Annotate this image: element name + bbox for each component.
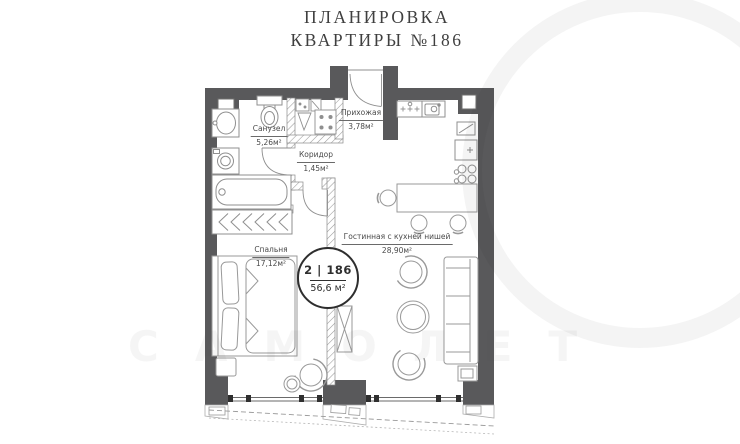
nightstand	[216, 358, 236, 376]
bedroom-door	[303, 190, 328, 216]
unit-badge: 2 | 186 56,6 м²	[297, 247, 359, 309]
room-label-koridor: Коридор 1,45м²	[297, 150, 335, 175]
room-name: Коридор	[297, 150, 335, 163]
room-name: Гостинная с кухней нишей	[342, 232, 453, 245]
room-name: Прихожая	[339, 108, 383, 121]
wardrobe	[212, 210, 292, 234]
toilet	[257, 96, 282, 128]
floor-plan-page: ПЛАНИРОВКА КВАРТИРЫ №186	[0, 0, 740, 444]
floor-plan-drawing	[0, 0, 740, 444]
coffee-table	[397, 301, 429, 333]
room-label-gostinaya: Гостинная с кухней нишей 28,90м²	[342, 232, 453, 257]
bed	[212, 256, 297, 356]
tv-console	[337, 306, 352, 352]
room-label-sanuzel: Санузел 5,26м²	[251, 124, 288, 149]
unit-number: 2 | 186	[304, 263, 352, 277]
room-area: 5,26м²	[251, 137, 288, 149]
room-name: Санузел	[251, 124, 288, 137]
kitchen-sink	[422, 101, 445, 117]
kitchen-counter	[397, 101, 422, 117]
balcony-outline	[205, 405, 494, 434]
bedroom-small-table	[284, 376, 300, 392]
room-label-prihozhaya: Прихожая 3,78м²	[339, 108, 383, 133]
washing-machine	[212, 148, 239, 174]
bathroom-sink	[212, 109, 239, 137]
utility-closet	[296, 99, 336, 134]
room-label-spalnya: Спальня 17,12м²	[252, 245, 289, 270]
sofa-side-table	[458, 366, 477, 381]
room-name: Спальня	[252, 245, 289, 258]
room-area: 17,12м²	[252, 258, 289, 270]
total-area: 56,6 м²	[310, 283, 345, 294]
bathtub	[212, 175, 291, 209]
watermark-circle	[472, 2, 740, 338]
sofa	[444, 257, 478, 364]
bathroom-door	[262, 148, 291, 175]
room-area: 1,45м²	[297, 163, 335, 175]
room-area: 3,78м²	[339, 121, 383, 133]
room-area: 28,90м²	[342, 245, 453, 257]
entry-door	[348, 70, 383, 107]
badge-divider	[310, 280, 346, 281]
